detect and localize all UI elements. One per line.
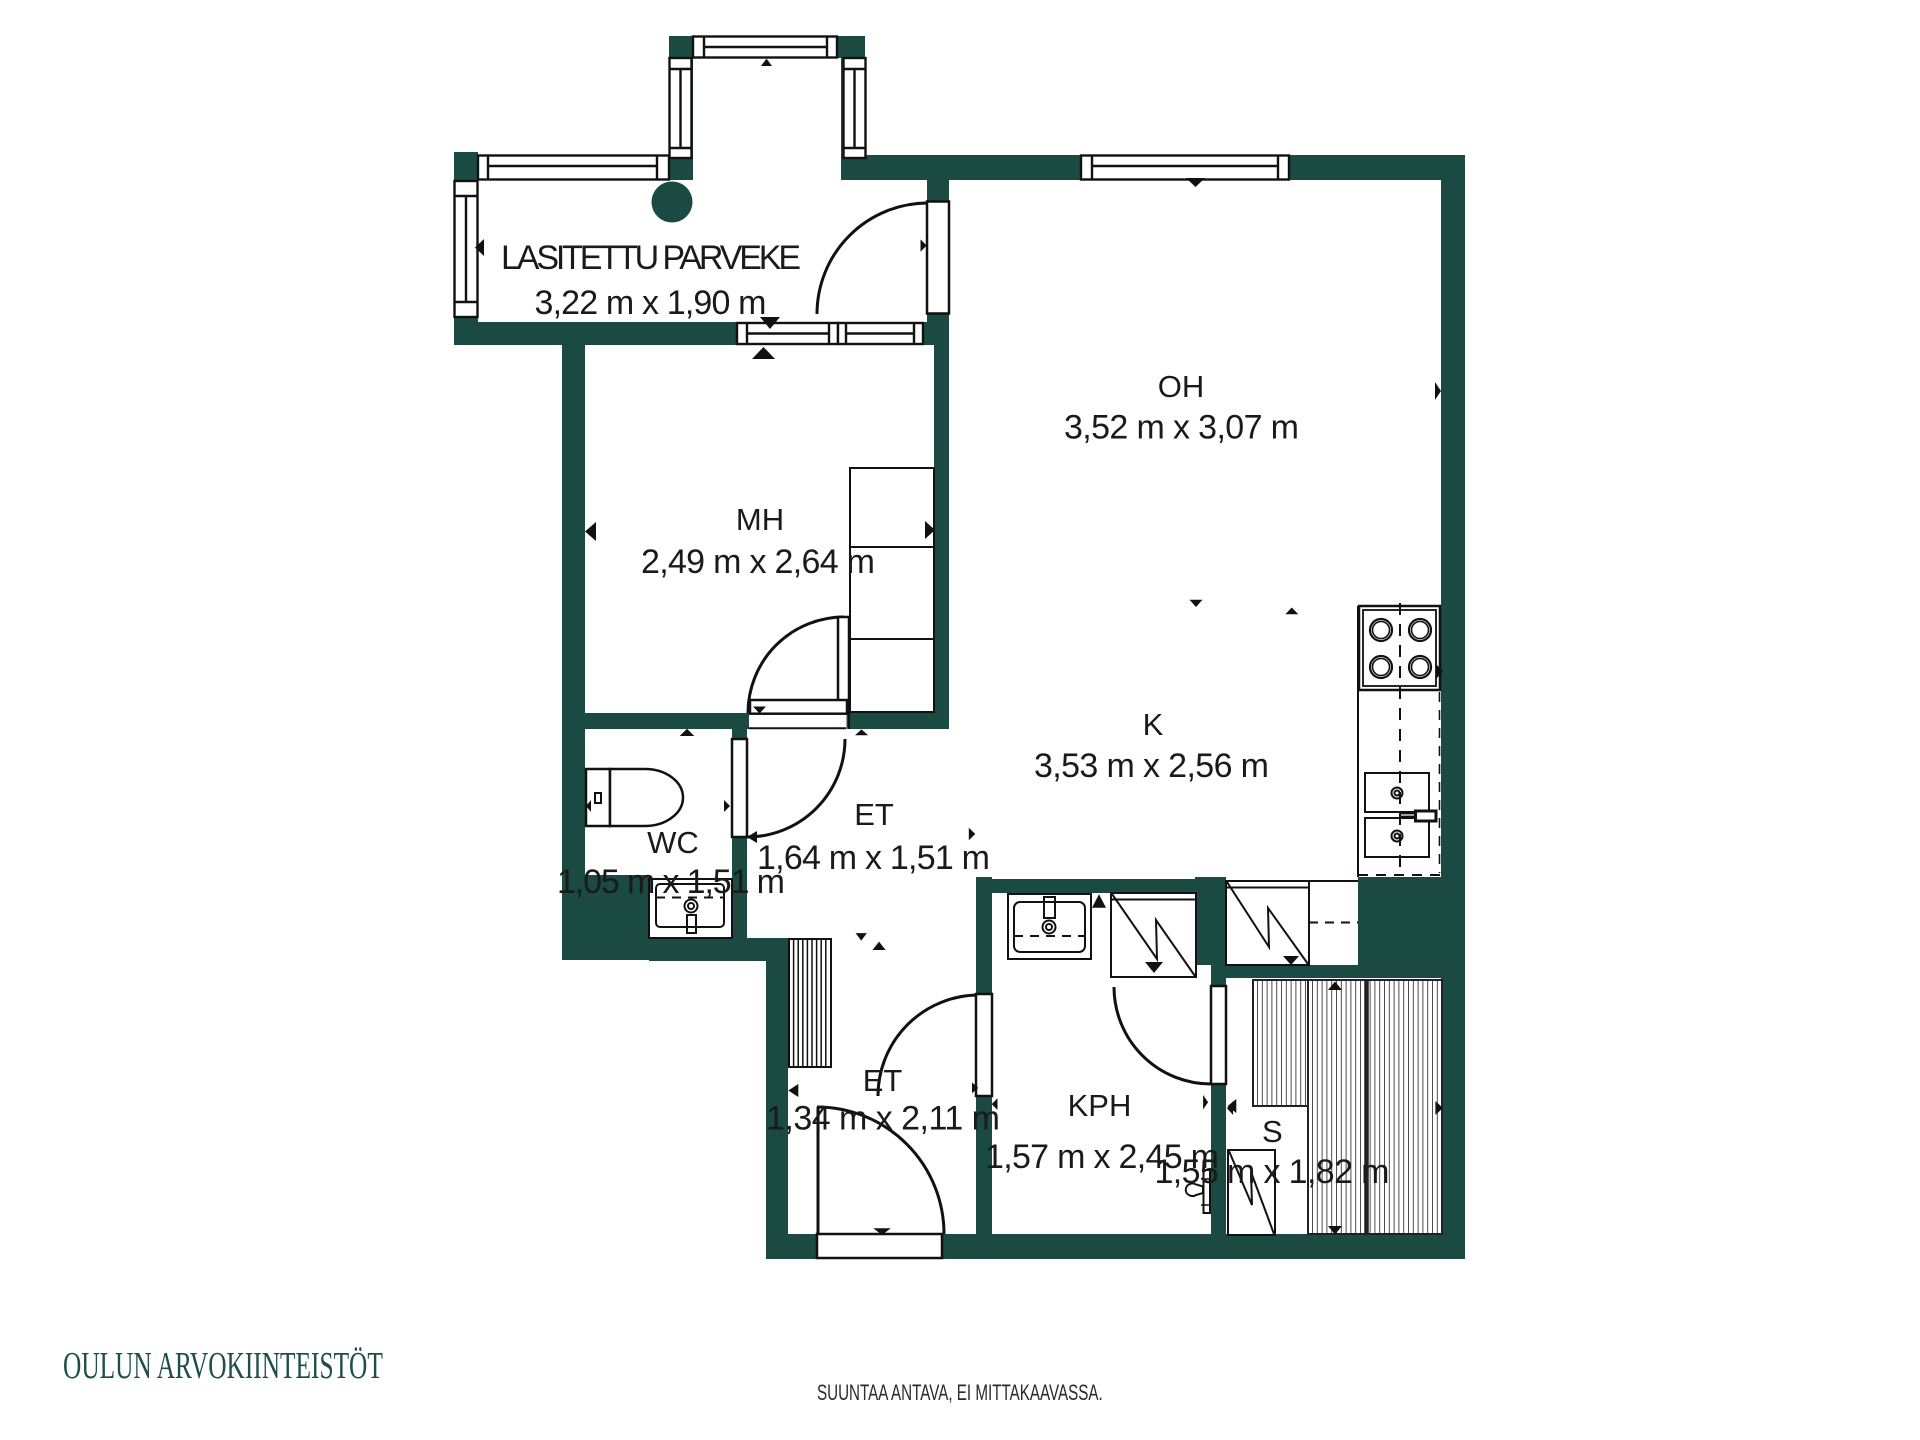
svg-text:K: K [1143,707,1164,742]
svg-text:S: S [1262,1114,1283,1149]
svg-text:3,53 m x 2,56 m: 3,53 m x 2,56 m [1034,747,1269,785]
svg-text:WC: WC [647,825,699,860]
svg-text:3,52 m x 3,07 m: 3,52 m x 3,07 m [1064,409,1299,447]
svg-text:1,55 m x 1,82 m: 1,55 m x 1,82 m [1155,1153,1390,1191]
svg-text:OH: OH [1158,369,1205,404]
svg-text:2,49 m x 2,64 m: 2,49 m x 2,64 m [641,543,875,581]
svg-text:1,05 m x 1,51 m: 1,05 m x 1,51 m [557,863,785,901]
svg-text:ET: ET [863,1063,903,1098]
svg-text:3,22 m x 1,90 m: 3,22 m x 1,90 m [535,284,767,322]
svg-text:ET: ET [854,797,894,832]
svg-text:SUUNTAA ANTAVA, EI MITTAKAAVAS: SUUNTAA ANTAVA, EI MITTAKAAVASSA. [817,1381,1103,1405]
svg-text:MH: MH [736,502,784,537]
svg-text:KPH: KPH [1068,1088,1132,1123]
svg-text:1,64 m x 1,51 m: 1,64 m x 1,51 m [757,839,990,877]
svg-text:LASITETTU PARVEKE: LASITETTU PARVEKE [501,239,801,277]
svg-text:OULUN ARVOKIINTEISTÖT: OULUN ARVOKIINTEISTÖT [63,1344,383,1386]
svg-text:1,34 m x 2,11 m: 1,34 m x 2,11 m [766,1100,1000,1138]
